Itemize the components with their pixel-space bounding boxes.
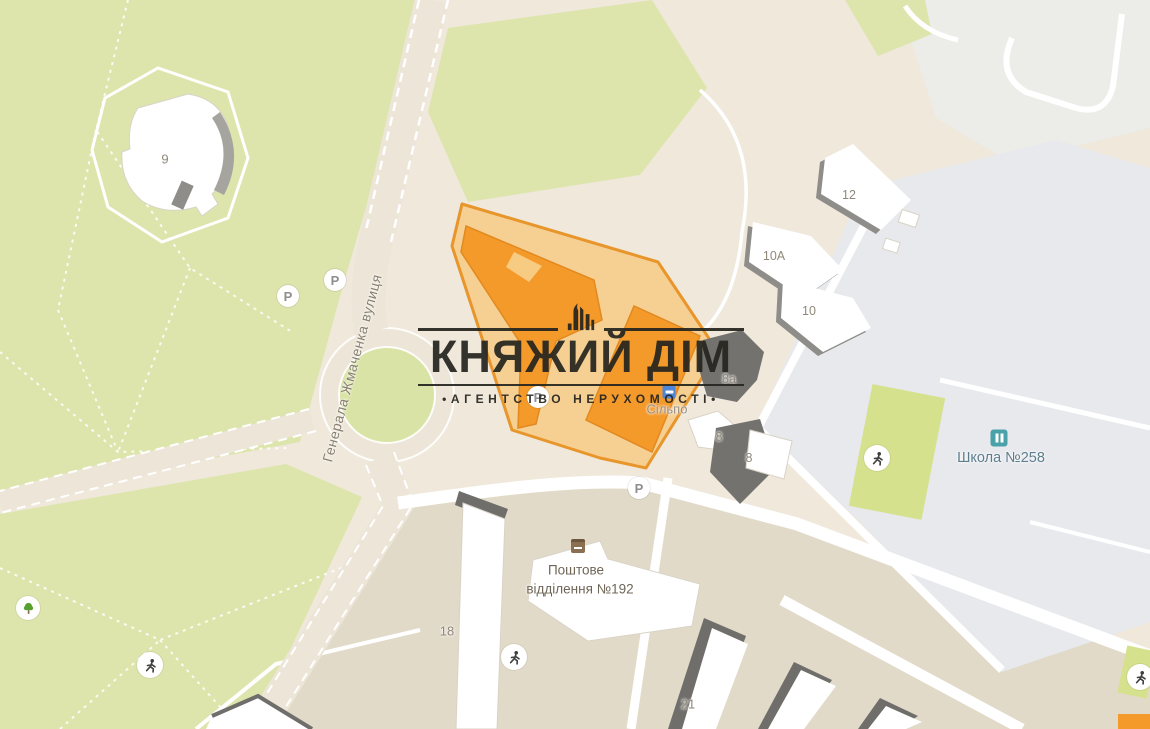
playground-icon	[864, 445, 890, 471]
building-label-8b: 8	[746, 451, 753, 465]
school-label[interactable]: Школа №258	[957, 450, 1045, 466]
post-office-label-line2[interactable]: відділення №192	[526, 582, 633, 597]
logo-bottom-rule	[418, 384, 744, 386]
tree-icon	[16, 596, 40, 620]
building-label-9: 9	[161, 152, 168, 167]
playground-icon	[501, 644, 527, 670]
logo-title: КНЯЖИЙ ДІМ	[418, 333, 744, 380]
building-label-10a: 10А	[763, 249, 785, 263]
logo-building-icon	[565, 301, 597, 331]
playground-icon	[137, 652, 163, 678]
watermark-logo: КНЯЖИЙ ДІМ •АГЕНТСТВО НЕРУХОМОСТІ•	[418, 301, 744, 406]
logo-subtitle: •АГЕНТСТВО НЕРУХОМОСТІ•	[418, 392, 744, 406]
building-label-12: 12	[842, 188, 856, 202]
parking-icon: P	[324, 269, 346, 291]
parking-icon: P	[628, 477, 650, 499]
map-viewport[interactable]: Генерала Жмаченка вулиця 9 12 10А 10 8а …	[0, 0, 1150, 729]
playground-icon	[1127, 664, 1150, 690]
listing-marker[interactable]	[1118, 714, 1150, 729]
building-label-21: 21	[681, 697, 695, 712]
school-icon[interactable]	[991, 430, 1008, 447]
post-office-label-line1[interactable]: Поштове	[548, 563, 604, 578]
logo-top-rule	[418, 301, 744, 331]
parking-icon: P	[277, 285, 299, 307]
building-label-18: 18	[440, 624, 454, 639]
post-office-icon[interactable]	[571, 539, 585, 553]
building-label-8: 8	[716, 430, 723, 444]
building-label-10: 10	[802, 304, 816, 318]
